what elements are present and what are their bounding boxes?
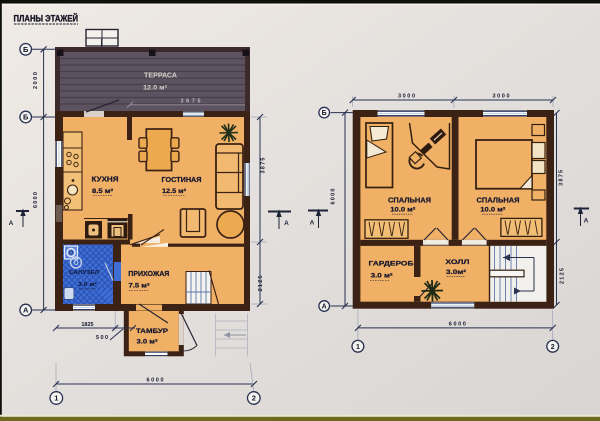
svg-text:Б: Б <box>322 110 327 117</box>
svg-text:6000: 6000 <box>331 189 337 205</box>
svg-text:А: А <box>584 218 589 225</box>
svg-text:Б: Б <box>23 45 29 54</box>
svg-text:А: А <box>322 304 327 311</box>
svg-text:1: 1 <box>356 344 360 351</box>
svg-text:12.0 м²: 12.0 м² <box>143 85 167 92</box>
svg-text:СПАЛЬНАЯ: СПАЛЬНАЯ <box>477 195 520 204</box>
svg-text:3.0 м²: 3.0 м² <box>137 339 158 346</box>
svg-text:ГАРДЕРОБ: ГАРДЕРОБ <box>369 260 414 267</box>
svg-text:ТАМБУР: ТАМБУР <box>136 328 169 335</box>
svg-text:СПАЛЬНАЯ: СПАЛЬНАЯ <box>388 195 431 204</box>
svg-text:12.5 м²: 12.5 м² <box>162 188 186 195</box>
svg-text:А: А <box>9 220 14 227</box>
svg-text:Б: Б <box>23 113 29 122</box>
svg-text:2125: 2125 <box>560 268 566 284</box>
svg-text:ТЕРРАСА: ТЕРРАСА <box>144 73 177 80</box>
svg-text:А: А <box>310 220 315 227</box>
svg-text:10.0 м²: 10.0 м² <box>480 207 505 214</box>
svg-text:САНУЗЕЛ: САНУЗЕЛ <box>69 270 99 276</box>
svg-text:3000: 3000 <box>398 94 415 100</box>
svg-text:2125: 2125 <box>258 275 264 291</box>
svg-text:500: 500 <box>96 335 108 341</box>
svg-text:7.5 м²: 7.5 м² <box>129 283 150 290</box>
svg-text:А: А <box>23 306 29 315</box>
svg-text:3000: 3000 <box>493 94 510 100</box>
svg-text:3.0м²: 3.0м² <box>446 269 466 276</box>
svg-text:1825: 1825 <box>81 322 93 328</box>
svg-text:6000: 6000 <box>449 321 466 327</box>
svg-text:2: 2 <box>551 344 555 351</box>
svg-text:3875: 3875 <box>261 158 267 174</box>
svg-text:2: 2 <box>252 394 256 403</box>
svg-text:2000: 2000 <box>33 72 39 89</box>
svg-text:КУХНЯ: КУХНЯ <box>92 175 119 184</box>
svg-text:ГОСТИНАЯ: ГОСТИНАЯ <box>162 175 202 184</box>
svg-text:3.0 м²: 3.0 м² <box>78 282 97 288</box>
svg-text:ПРИХОЖАЯ: ПРИХОЖАЯ <box>128 269 169 278</box>
svg-text:6000: 6000 <box>33 192 39 208</box>
svg-text:3.0 м²: 3.0 м² <box>371 272 393 279</box>
svg-text:10.0 м²: 10.0 м² <box>390 207 415 214</box>
svg-text:А: А <box>284 220 289 227</box>
svg-text:8.5 м²: 8.5 м² <box>92 188 113 195</box>
svg-text:3875: 3875 <box>559 170 565 186</box>
svg-text:6000: 6000 <box>147 378 164 384</box>
svg-text:ПЛАНЫ ЭТАЖЕЙ: ПЛАНЫ ЭТАЖЕЙ <box>14 13 79 24</box>
svg-text:1: 1 <box>54 394 58 403</box>
svg-text:ХОЛЛ: ХОЛЛ <box>445 259 469 266</box>
